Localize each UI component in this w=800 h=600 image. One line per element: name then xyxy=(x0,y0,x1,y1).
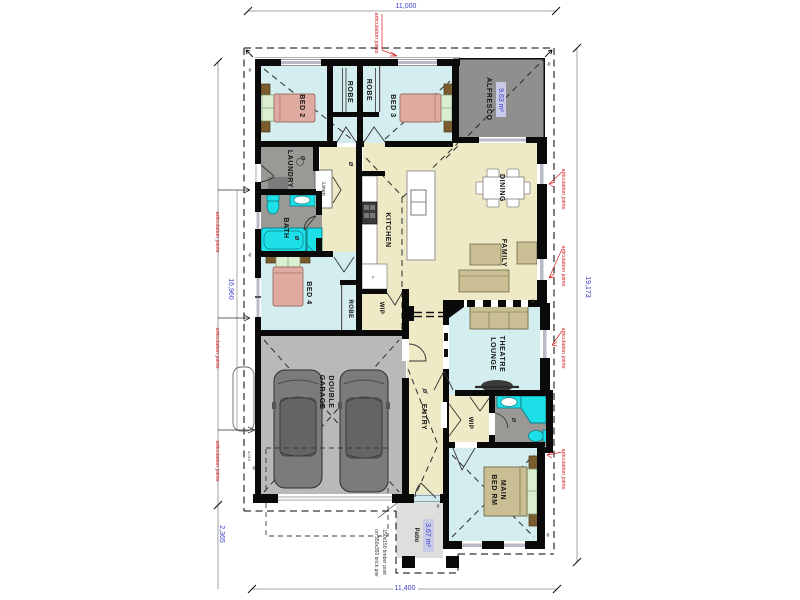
svg-text:ROBE: ROBE xyxy=(365,79,372,102)
svg-text:11,000: 11,000 xyxy=(396,3,417,10)
svg-text:DOUBLE: DOUBLE xyxy=(327,375,334,408)
svg-text:WIP: WIP xyxy=(378,302,384,315)
svg-text:articulation joints: articulation joints xyxy=(214,212,220,253)
svg-text:BED 3: BED 3 xyxy=(389,94,396,118)
svg-text:2,365: 2,365 xyxy=(218,525,225,543)
svg-text:3.67 m²: 3.67 m² xyxy=(424,523,431,547)
svg-text:Linen: Linen xyxy=(320,182,326,195)
svg-text:ROBE: ROBE xyxy=(346,81,353,104)
svg-text:FAMILY: FAMILY xyxy=(500,239,507,268)
svg-text:11,400: 11,400 xyxy=(395,585,416,592)
svg-text:articulation joints: articulation joints xyxy=(560,169,566,210)
svg-text:LAUNDRY: LAUNDRY xyxy=(286,150,293,188)
svg-text:150x150 timber post: 150x150 timber post xyxy=(381,529,387,575)
svg-text:articulation joints: articulation joints xyxy=(560,328,566,369)
svg-text:KITCHEN: KITCHEN xyxy=(384,212,391,247)
svg-text:THEATRE: THEATRE xyxy=(498,336,505,373)
svg-text:dp: dp xyxy=(252,466,257,471)
svg-text:19,173: 19,173 xyxy=(584,276,591,298)
svg-text:dp: dp xyxy=(531,299,536,304)
svg-text:articulation joints: articulation joints xyxy=(214,441,220,482)
svg-text:dp: dp xyxy=(436,504,441,509)
svg-text:articulation joints: articulation joints xyxy=(373,13,379,54)
svg-text:16,960: 16,960 xyxy=(227,278,234,300)
svg-text:dp: dp xyxy=(546,533,551,538)
svg-text:ENTRY: ENTRY xyxy=(420,404,427,430)
svg-text:ALFRESCO: ALFRESCO xyxy=(485,77,492,120)
svg-text:articulation joints: articulation joints xyxy=(214,328,220,369)
svg-text:BED RM: BED RM xyxy=(490,474,497,505)
svg-text:LOUNGE: LOUNGE xyxy=(489,337,496,371)
svg-text:GARAGE: GARAGE xyxy=(318,375,325,409)
svg-text:dp: dp xyxy=(248,68,253,73)
svg-text:WIP: WIP xyxy=(467,417,473,430)
svg-text:on 350x350 brick pier: on 350x350 brick pier xyxy=(373,529,379,577)
svg-text:ROBE: ROBE xyxy=(347,300,353,319)
svg-text:BATH: BATH xyxy=(282,217,289,238)
svg-text:MAIN: MAIN xyxy=(499,480,506,500)
svg-text:4,019: 4,019 xyxy=(247,451,252,462)
svg-text:Patio: Patio xyxy=(413,528,419,543)
svg-text:BED 2: BED 2 xyxy=(298,94,305,118)
svg-text:F: F xyxy=(372,275,375,280)
svg-text:BED 4: BED 4 xyxy=(305,281,312,305)
svg-text:dp: dp xyxy=(248,253,253,258)
svg-text:dp: dp xyxy=(547,62,552,67)
svg-text:articulation joints: articulation joints xyxy=(560,449,566,490)
svg-text:9.63 m²: 9.63 m² xyxy=(497,88,504,112)
svg-text:DINING: DINING xyxy=(498,174,505,202)
